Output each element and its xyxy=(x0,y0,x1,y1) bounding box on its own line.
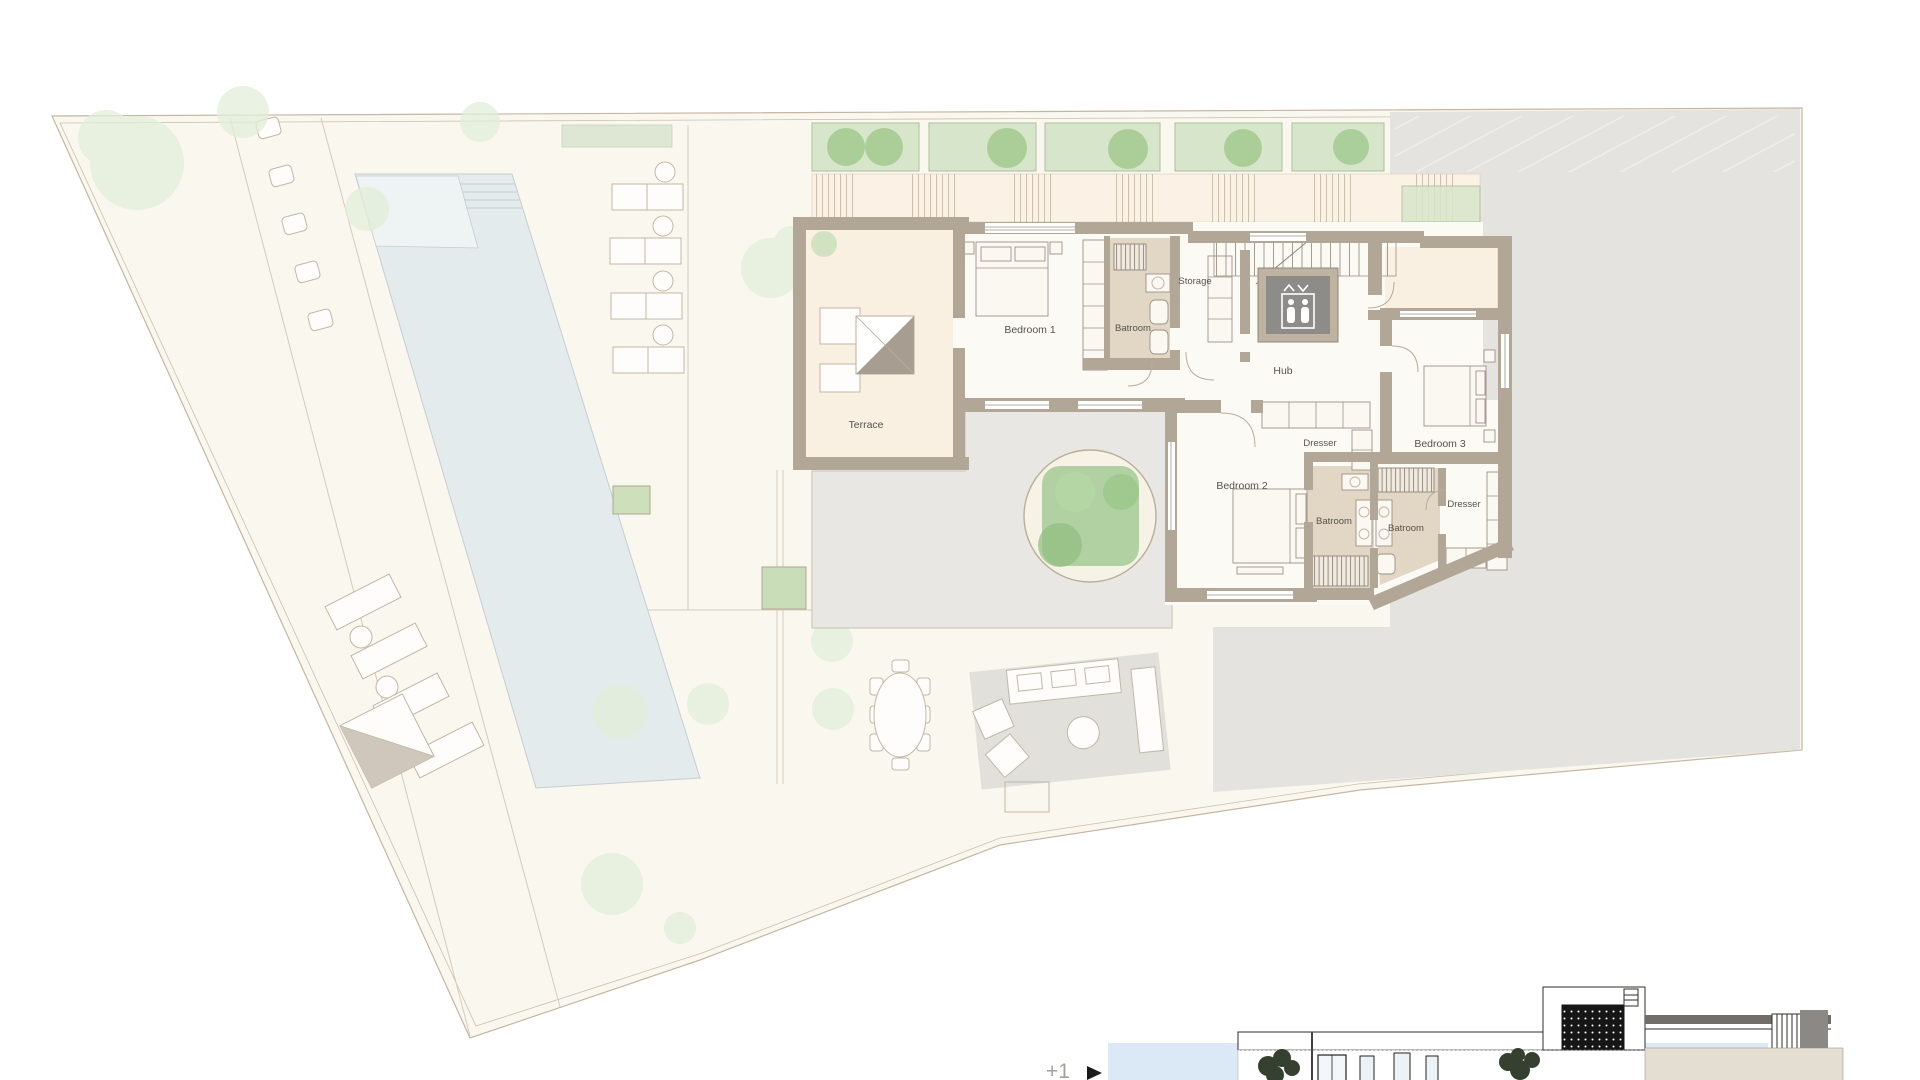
bed xyxy=(1233,489,1307,563)
courtyard-tree xyxy=(1038,466,1139,567)
label-bedroom1: Bedroom 1 xyxy=(1004,324,1056,336)
window xyxy=(985,223,1075,233)
label-bedroom3: Bedroom 3 xyxy=(1414,438,1466,450)
dining-chair xyxy=(892,758,909,770)
label-bedroom2: Bedroom 2 xyxy=(1216,480,1268,492)
label-bathroom2: Batroom xyxy=(1316,516,1352,527)
sliding-door xyxy=(1078,401,1142,409)
dining-table xyxy=(874,673,926,757)
label-bathroom3: Batroom xyxy=(1388,523,1424,534)
louver-canopy xyxy=(812,174,1480,222)
hedge xyxy=(562,125,672,147)
planter-row xyxy=(812,123,1384,171)
bench xyxy=(1237,567,1283,574)
label-dresser-hub: Dresser xyxy=(1303,438,1336,449)
side-table xyxy=(653,325,673,345)
site-plan-drawing: Terrace Bedroom 1 Batroom Storage Hub Dr… xyxy=(0,0,1920,1080)
outdoor-lounge-set xyxy=(969,652,1171,789)
label-dresser-bedroom3: Dresser xyxy=(1447,499,1480,510)
shrub xyxy=(811,231,837,257)
side-table xyxy=(653,216,673,236)
tree xyxy=(345,187,389,231)
side-table xyxy=(653,271,673,291)
nightstand xyxy=(1050,242,1062,254)
pillow xyxy=(1476,371,1485,395)
window xyxy=(1250,233,1306,241)
sun-lounger xyxy=(610,238,681,264)
tree xyxy=(217,86,269,138)
pillow xyxy=(1476,399,1485,423)
level-marker-icon xyxy=(1087,1066,1102,1080)
window xyxy=(1394,1053,1410,1080)
window xyxy=(1426,1056,1438,1080)
sliding-door xyxy=(985,401,1049,409)
stair-core-block xyxy=(1800,1010,1828,1054)
toilet xyxy=(1150,300,1168,324)
sun-lounger xyxy=(612,184,683,210)
vanity xyxy=(1356,500,1372,546)
building-section xyxy=(1238,987,1843,1080)
nightstand xyxy=(1484,350,1495,362)
window xyxy=(1400,311,1476,317)
sun-lounger xyxy=(611,293,682,319)
glass-door xyxy=(1318,1055,1346,1080)
tree xyxy=(593,685,647,739)
parasol xyxy=(856,316,914,374)
window xyxy=(1168,442,1175,530)
side-table xyxy=(350,626,372,648)
pillow xyxy=(981,247,1011,261)
shower xyxy=(1378,468,1434,492)
window xyxy=(1207,591,1293,599)
shower xyxy=(1308,556,1368,586)
planter-box xyxy=(1402,186,1480,222)
tree xyxy=(460,102,500,142)
sun-lounger xyxy=(613,347,684,373)
elevation-inset xyxy=(1108,987,1843,1080)
sink xyxy=(1146,274,1170,292)
bed xyxy=(976,242,1048,316)
label-storage: Storage xyxy=(1178,276,1211,287)
neighbor-roof-hatch xyxy=(1395,116,1795,172)
elevator-cab xyxy=(1266,276,1330,334)
tree xyxy=(78,110,134,166)
path-planter xyxy=(613,486,650,514)
level-label: +1 xyxy=(1046,1060,1070,1080)
nightstand xyxy=(1484,430,1495,442)
washer xyxy=(1114,244,1146,270)
courtyard-planter xyxy=(762,567,806,609)
floor-plan-sheet: Terrace Bedroom 1 Batroom Storage Hub Dr… xyxy=(0,0,1920,1080)
upper-terrace-room-floor xyxy=(1385,247,1497,313)
label-terrace: Terrace xyxy=(848,419,883,431)
tree xyxy=(687,683,729,725)
garden-wall xyxy=(1645,1048,1843,1080)
pillow xyxy=(1296,494,1306,524)
side-table xyxy=(655,162,675,182)
toilet xyxy=(1150,330,1168,354)
lounge-chair xyxy=(820,308,860,344)
tree xyxy=(581,853,643,915)
tree xyxy=(664,912,696,944)
label-hub: Hub xyxy=(1273,365,1292,377)
label-bathroom1: Batroom xyxy=(1115,323,1151,334)
wardrobe xyxy=(1083,240,1107,370)
tree xyxy=(812,688,854,730)
roof-band xyxy=(1238,1032,1570,1050)
elevator xyxy=(1258,268,1338,342)
perforated-panel xyxy=(1562,1005,1624,1049)
bedroom2-furniture xyxy=(1233,489,1307,574)
sink xyxy=(1342,474,1368,490)
window xyxy=(1501,334,1509,388)
dining-chair xyxy=(892,660,909,672)
rooftop-detail xyxy=(1624,989,1638,1006)
pillow xyxy=(1015,247,1045,261)
toilet xyxy=(1377,554,1395,574)
bed xyxy=(1424,366,1486,426)
lounge-chair xyxy=(820,364,860,392)
level-marker: +1 xyxy=(1046,1060,1102,1080)
window xyxy=(1360,1056,1374,1080)
